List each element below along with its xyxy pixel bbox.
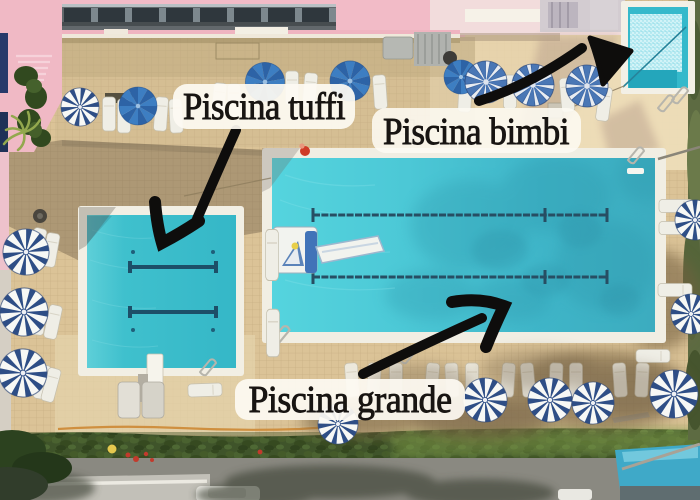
svg-text:Piscina bimbi: Piscina bimbi	[383, 111, 569, 153]
svg-text:Piscina grande: Piscina grande	[249, 379, 452, 421]
svg-text:Piscina tuffi: Piscina tuffi	[183, 86, 345, 128]
